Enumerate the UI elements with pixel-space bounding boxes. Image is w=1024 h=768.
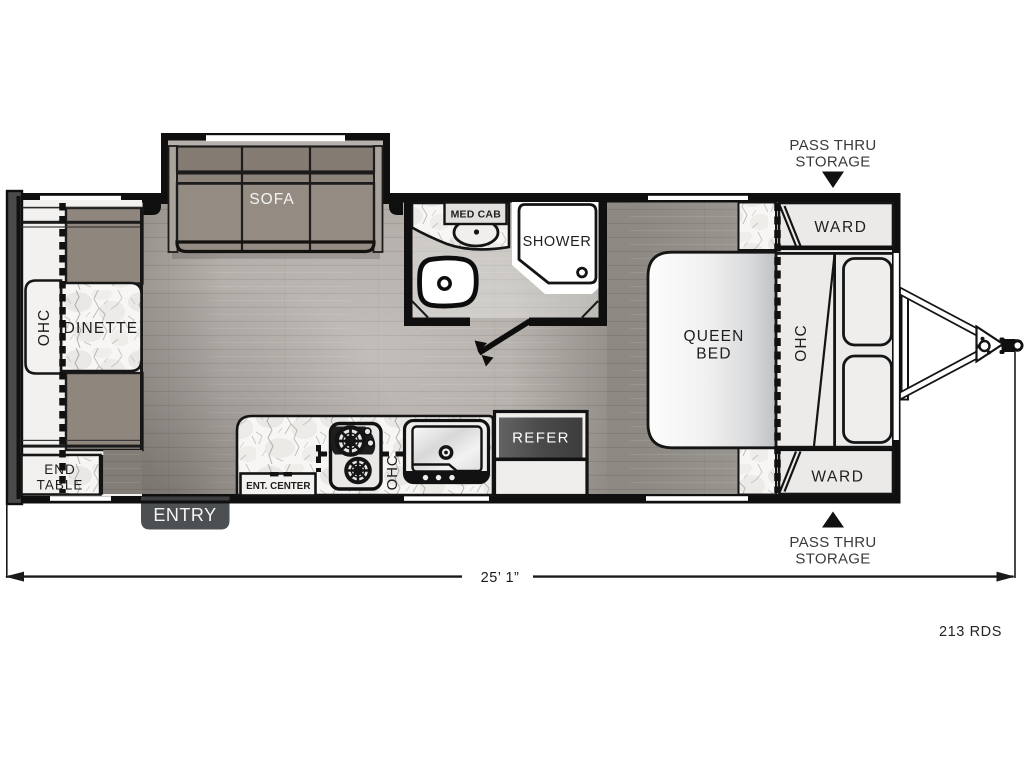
svg-text:STORAGE: STORAGE (795, 154, 870, 171)
svg-text:213 RDS: 213 RDS (939, 624, 1002, 640)
svg-text:SHOWER: SHOWER (523, 234, 592, 250)
svg-text:OHC: OHC (384, 455, 401, 491)
svg-text:PASS THRU: PASS THRU (789, 137, 876, 154)
svg-text:QUEEN: QUEEN (683, 328, 744, 345)
svg-text:MED CAB: MED CAB (451, 209, 502, 221)
svg-text:BED: BED (696, 346, 731, 363)
svg-text:STORAGE: STORAGE (795, 551, 870, 568)
svg-text:ENTRY: ENTRY (153, 505, 216, 525)
svg-text:ENT. CENTER: ENT. CENTER (246, 481, 310, 492)
svg-text:REFER: REFER (512, 430, 570, 447)
svg-text:25’ 1”: 25’ 1” (481, 570, 520, 586)
svg-text:DINETTE: DINETTE (64, 320, 139, 337)
svg-text:SOFA: SOFA (249, 191, 294, 208)
svg-text:PASS THRU: PASS THRU (789, 534, 876, 551)
svg-text:OHC: OHC (793, 324, 810, 361)
svg-text:WARD: WARD (814, 219, 867, 236)
svg-text:OHC: OHC (36, 309, 53, 346)
svg-text:WARD: WARD (811, 469, 864, 486)
